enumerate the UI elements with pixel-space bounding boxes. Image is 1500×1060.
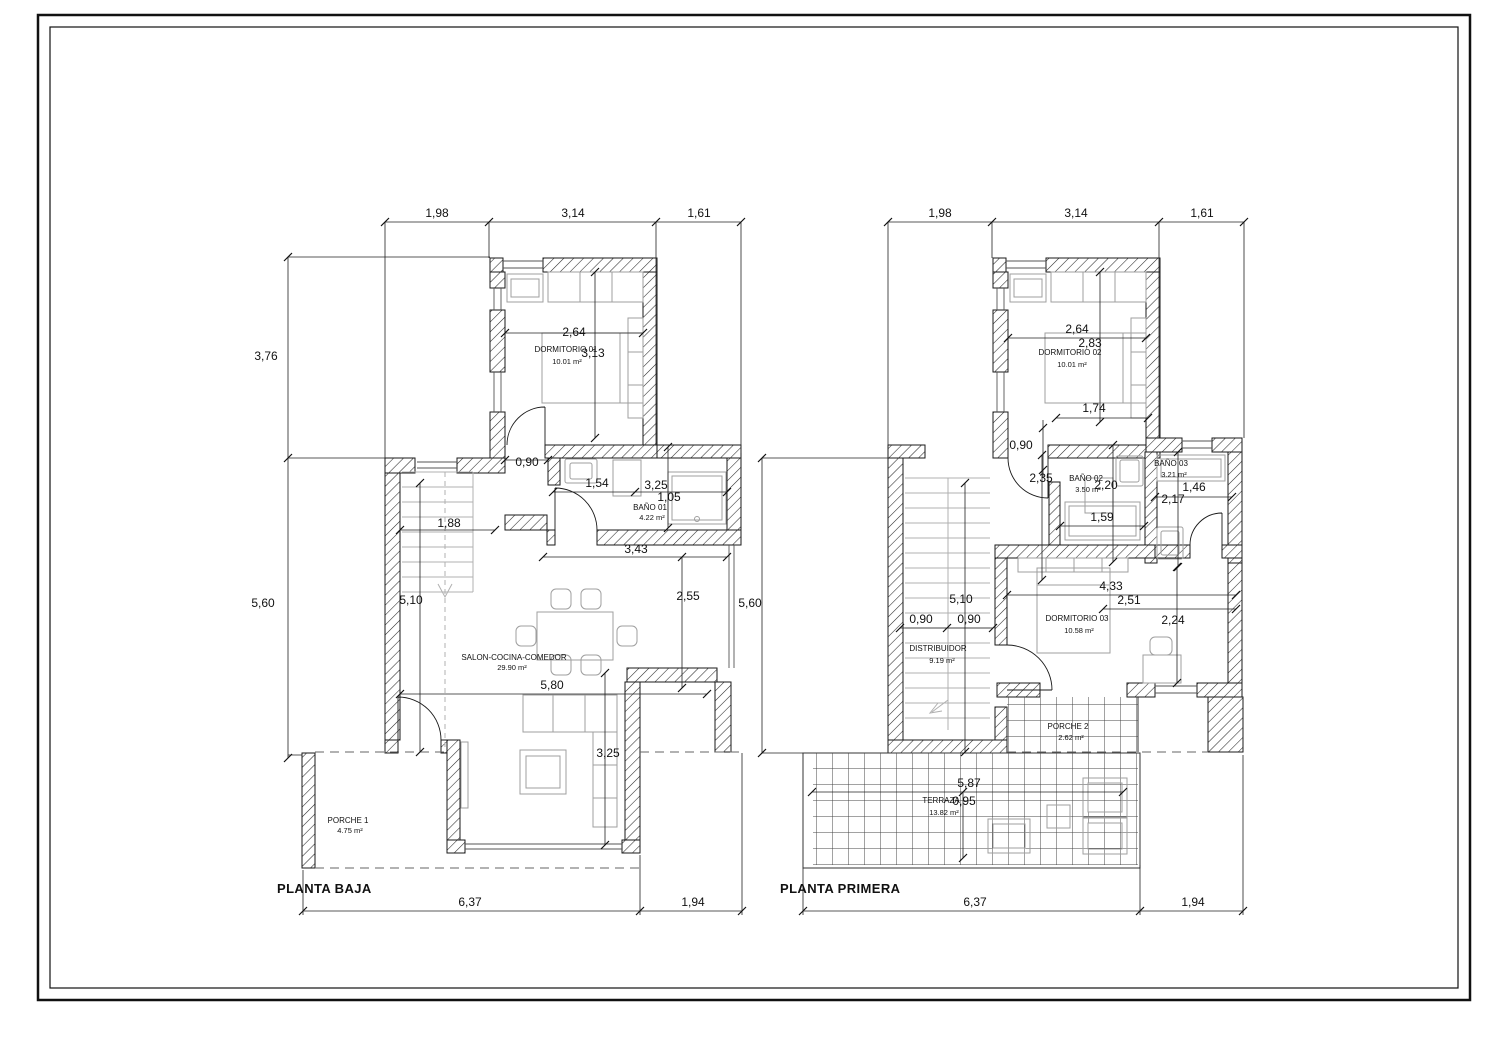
room-area: 2.62 m² (1058, 733, 1084, 742)
dim-label: 1,59 (1090, 510, 1114, 524)
dim-label: 6,37 (458, 895, 482, 909)
dim-label: 2,51 (1117, 593, 1141, 607)
dim-label: 0,90 (515, 455, 539, 469)
dim-label: 1,74 (1082, 401, 1106, 415)
dim-label: 3,14 (1064, 206, 1088, 220)
tv-board (461, 742, 468, 808)
wardrobe-row (1018, 558, 1128, 572)
plan-title: PLANTA PRIMERA (780, 881, 901, 896)
porch-dashed-lines (315, 752, 742, 868)
room-area: 3.50 m² (1075, 485, 1101, 494)
dim-label: 2,55 (676, 589, 700, 603)
room-name: TERRAZA (922, 796, 960, 805)
room-name: DISTRIBUIDOR (909, 644, 967, 653)
coffee-table (520, 750, 566, 794)
dim-label: 2,64 (562, 325, 586, 339)
room-name: DORMITORIO 02 (1039, 348, 1103, 357)
dim-label: 5,87 (957, 776, 981, 790)
dim-label: 5,10 (949, 592, 973, 606)
dim-label: 1,94 (1181, 895, 1205, 909)
sofa (523, 695, 617, 827)
dim-label: 1,05 (657, 490, 681, 504)
dresser (1010, 274, 1046, 302)
room-name: PORCHE 2 (1048, 722, 1089, 731)
closet (548, 272, 643, 302)
terraza-tiles (813, 753, 1138, 865)
room-name: BAÑO 01 (633, 503, 667, 512)
floor-plan-drawing: 1,98 3,14 1,61 3,76 5,60 6,37 1,94 2,64 … (0, 0, 1500, 1060)
dim-label: 3,76 (254, 349, 278, 363)
room-area: 3.21 m² (1161, 470, 1187, 479)
dim-label: 1,88 (437, 516, 461, 530)
room-area: 10.01 m² (1057, 360, 1087, 369)
dim-label: 0,90 (909, 612, 933, 626)
dim-label: 1,94 (681, 895, 705, 909)
dim-label: 1,98 (425, 206, 449, 220)
room-name: SALON-COCINA-COMEDOR (461, 653, 567, 662)
room-area: 10.58 m² (1064, 626, 1094, 635)
room-area: 4.22 m² (639, 513, 665, 522)
dim-label: 1,98 (928, 206, 952, 220)
room-area: 10.01 m² (552, 357, 582, 366)
dim-label: 1,46 (1182, 480, 1206, 494)
plan-planta-primera: 1,98 3,14 1,61 5,60 6,37 1,94 2,64 2,83 … (738, 206, 1248, 915)
room-name: BAÑO 02 (1069, 474, 1103, 483)
room-area: 9.19 m² (929, 656, 955, 665)
dim-label: 3,43 (624, 542, 648, 556)
dim-label: 2,35 (1029, 471, 1053, 485)
dim-label: 5,10 (399, 593, 423, 607)
walls (302, 258, 741, 868)
labels: 1,98 3,14 1,61 3,76 5,60 6,37 1,94 2,64 … (251, 206, 711, 909)
room-area: 13.82 m² (929, 808, 959, 817)
desk (1143, 637, 1181, 683)
chairs (516, 589, 637, 675)
dim-label: 5,60 (738, 596, 762, 610)
dim-label: 3,14 (561, 206, 585, 220)
blueprint-sheet: 1,98 3,14 1,61 3,76 5,60 6,37 1,94 2,64 … (0, 0, 1500, 1060)
sheet-frame (38, 15, 1470, 1000)
stairs (905, 478, 990, 730)
dim-label: 2,24 (1161, 613, 1185, 627)
dim-label: 5,60 (251, 596, 275, 610)
sink (1116, 456, 1143, 486)
dim-label: 1,61 (687, 206, 711, 220)
room-name: BAÑO 03 (1154, 459, 1188, 468)
dim-label: 0,90 (1009, 438, 1033, 452)
dim-label: 3,25 (596, 746, 620, 760)
plan-title: PLANTA BAJA (277, 881, 372, 896)
stairs (402, 472, 473, 750)
dim-label: 2,64 (1065, 322, 1089, 336)
dim-label: 6,37 (963, 895, 987, 909)
dim-label: 4,33 (1099, 579, 1123, 593)
dim-label: 0,90 (957, 612, 981, 626)
dim-label: 1,61 (1190, 206, 1214, 220)
dim-label: 1,54 (585, 476, 609, 490)
dresser (507, 274, 543, 302)
room-name: PORCHE 1 (328, 816, 369, 825)
dim-label: 5,80 (540, 678, 564, 692)
dimension-lines (284, 218, 746, 915)
room-name: DORMITORIO 03 (1046, 614, 1110, 623)
closet (1051, 272, 1146, 302)
plan-planta-baja: 1,98 3,14 1,61 3,76 5,60 6,37 1,94 2,64 … (251, 206, 746, 915)
room-area: 4.75 m² (337, 826, 363, 835)
room-name: DORMITORIO 01 (535, 345, 599, 354)
dim-label: 2,17 (1161, 492, 1185, 506)
room-area: 29.90 m² (497, 663, 527, 672)
